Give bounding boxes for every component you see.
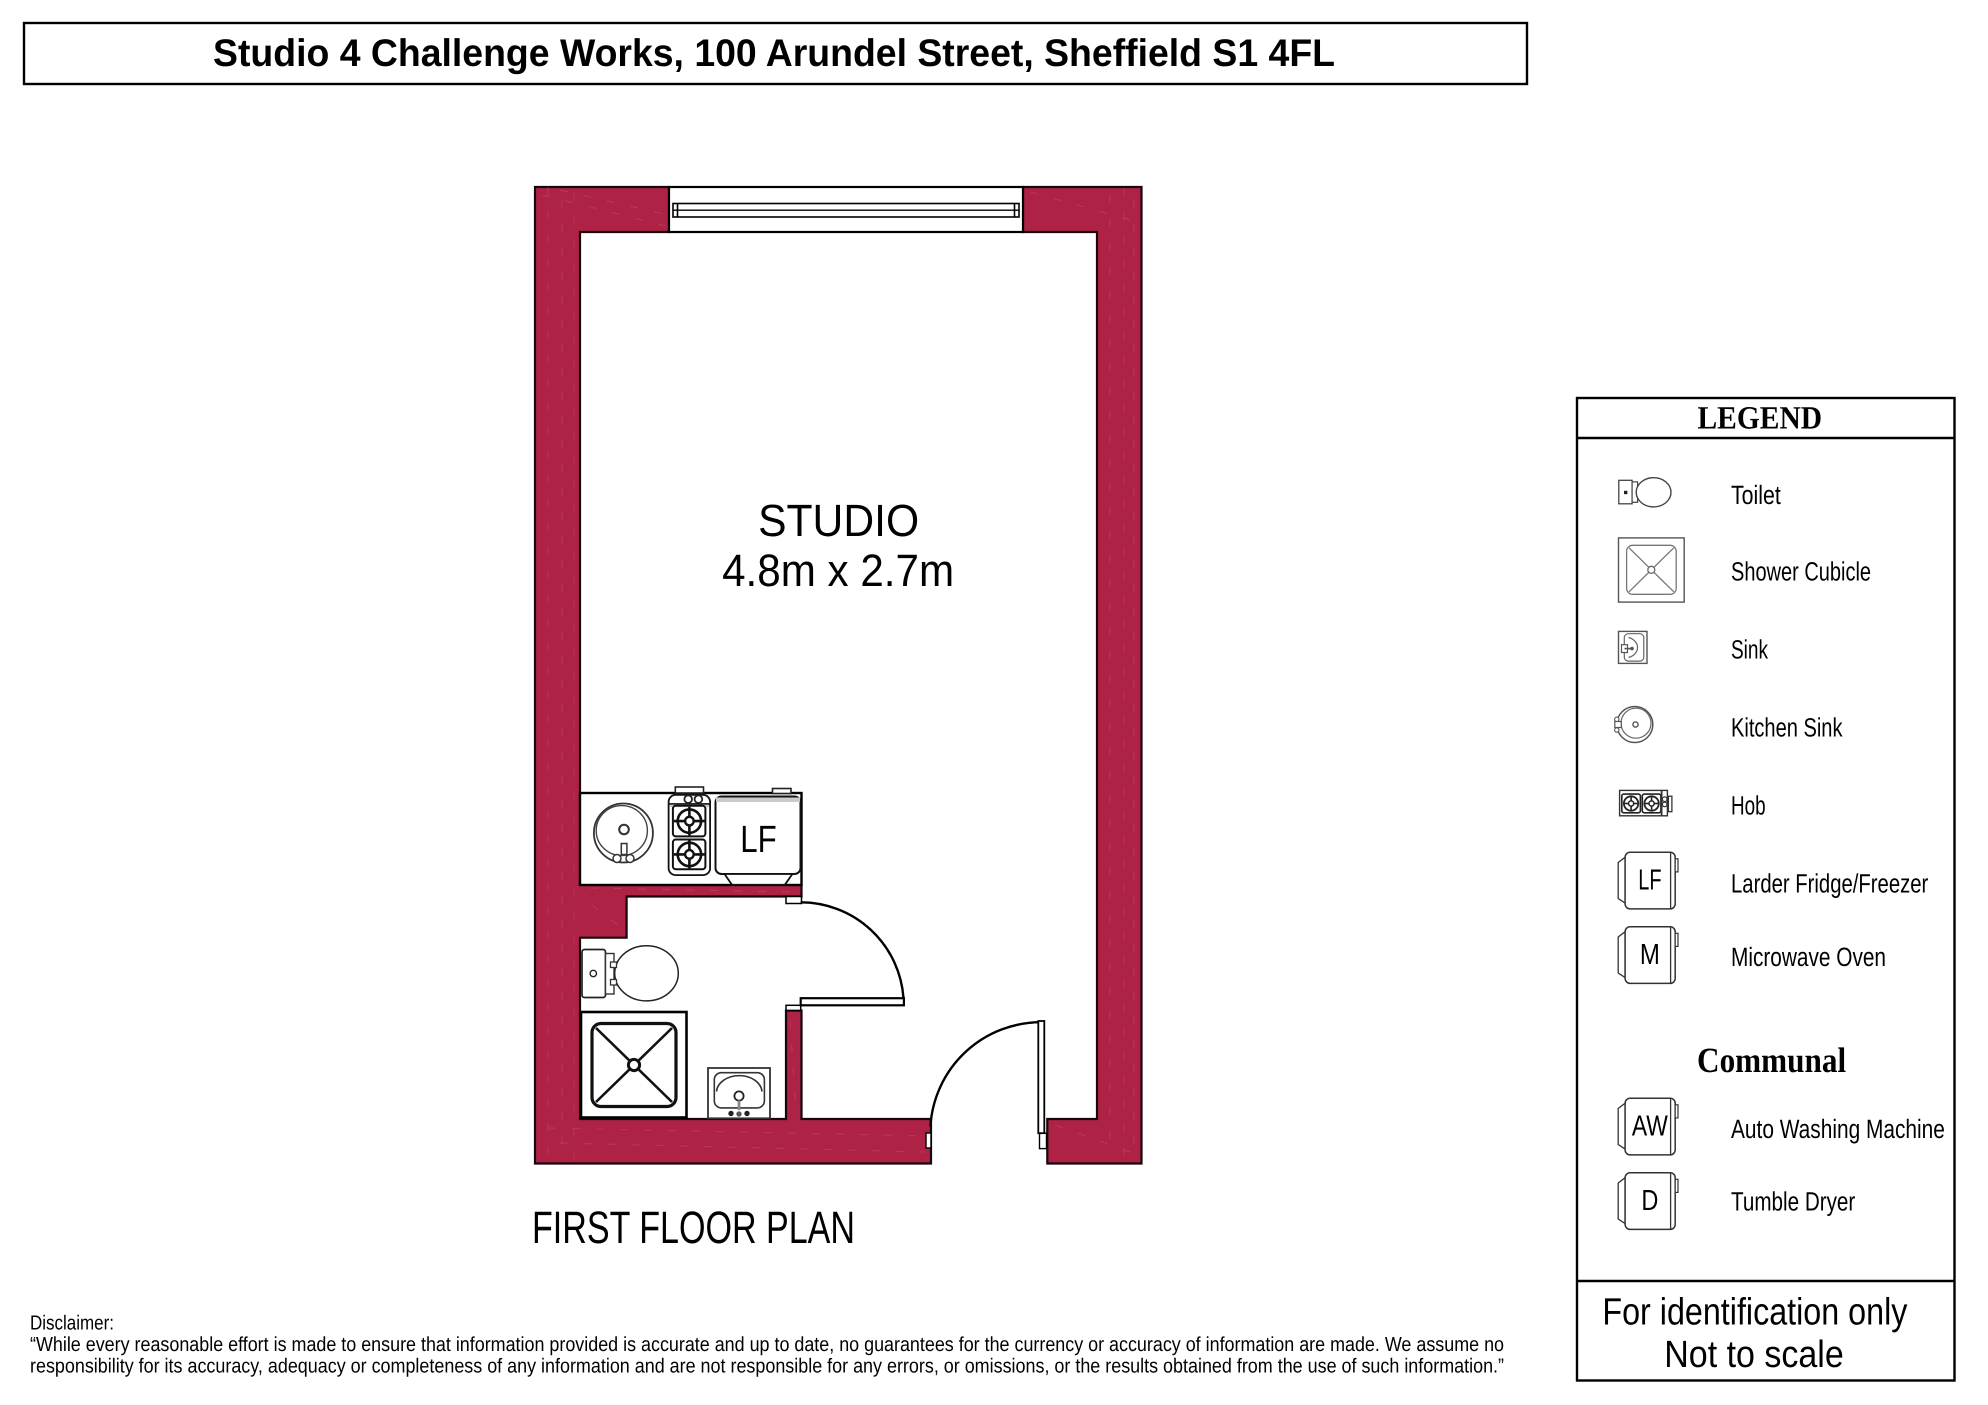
svg-text:Shower Cubicle: Shower Cubicle [1731,556,1871,586]
svg-text:For identification only: For identification only [1602,1292,1907,1334]
svg-text:Auto Washing Machine: Auto Washing Machine [1731,1114,1945,1144]
svg-text:Hob: Hob [1731,791,1766,821]
svg-text:LEGEND: LEGEND [1698,400,1823,436]
svg-text:LF: LF [740,819,777,861]
svg-text:Toilet: Toilet [1731,480,1781,510]
svg-text:Communal: Communal [1697,1040,1846,1080]
svg-text:Disclaimer:: Disclaimer: [30,1312,114,1334]
svg-text:Tumble Dryer: Tumble Dryer [1731,1187,1855,1217]
svg-text:LF: LF [1638,865,1661,897]
svg-text:AW: AW [1632,1111,1668,1143]
svg-text:D: D [1641,1185,1658,1217]
svg-text:Sink: Sink [1731,634,1769,664]
svg-text:M: M [1640,939,1660,971]
svg-text:FIRST FLOOR PLAN: FIRST FLOOR PLAN [532,1202,855,1253]
svg-text:“While every reasonable effort: “While every reasonable effort is made t… [30,1334,1504,1356]
svg-text:Microwave Oven: Microwave Oven [1731,942,1886,972]
svg-text:responsibility for its accurac: responsibility for its accuracy, adequac… [30,1356,1504,1378]
svg-text:Larder Fridge/Freezer: Larder Fridge/Freezer [1731,869,1928,899]
svg-text:Not to scale: Not to scale [1664,1334,1844,1376]
svg-text:STUDIO: STUDIO [758,495,919,546]
svg-text:4.8m x 2.7m: 4.8m x 2.7m [722,545,954,596]
svg-text:Studio 4 Challenge Works, 100: Studio 4 Challenge Works, 100 Arundel St… [213,32,1335,75]
svg-text:Kitchen Sink: Kitchen Sink [1731,712,1843,742]
